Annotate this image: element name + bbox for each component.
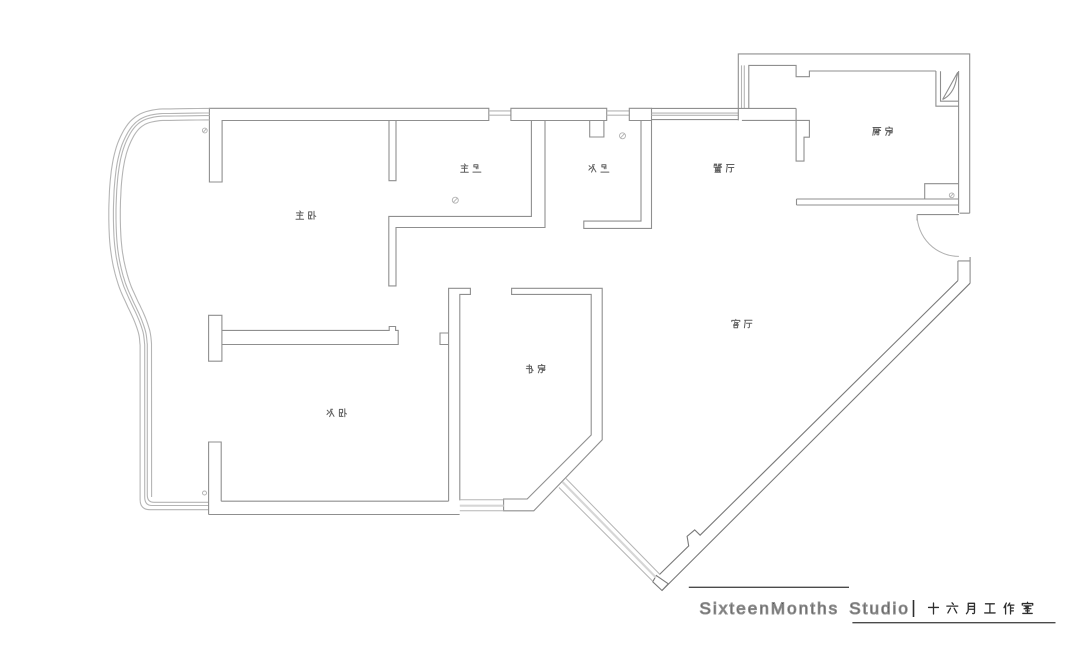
svg-text:Studio: Studio [849, 599, 910, 618]
svg-text:SixteenMonths: SixteenMonths [700, 599, 840, 618]
